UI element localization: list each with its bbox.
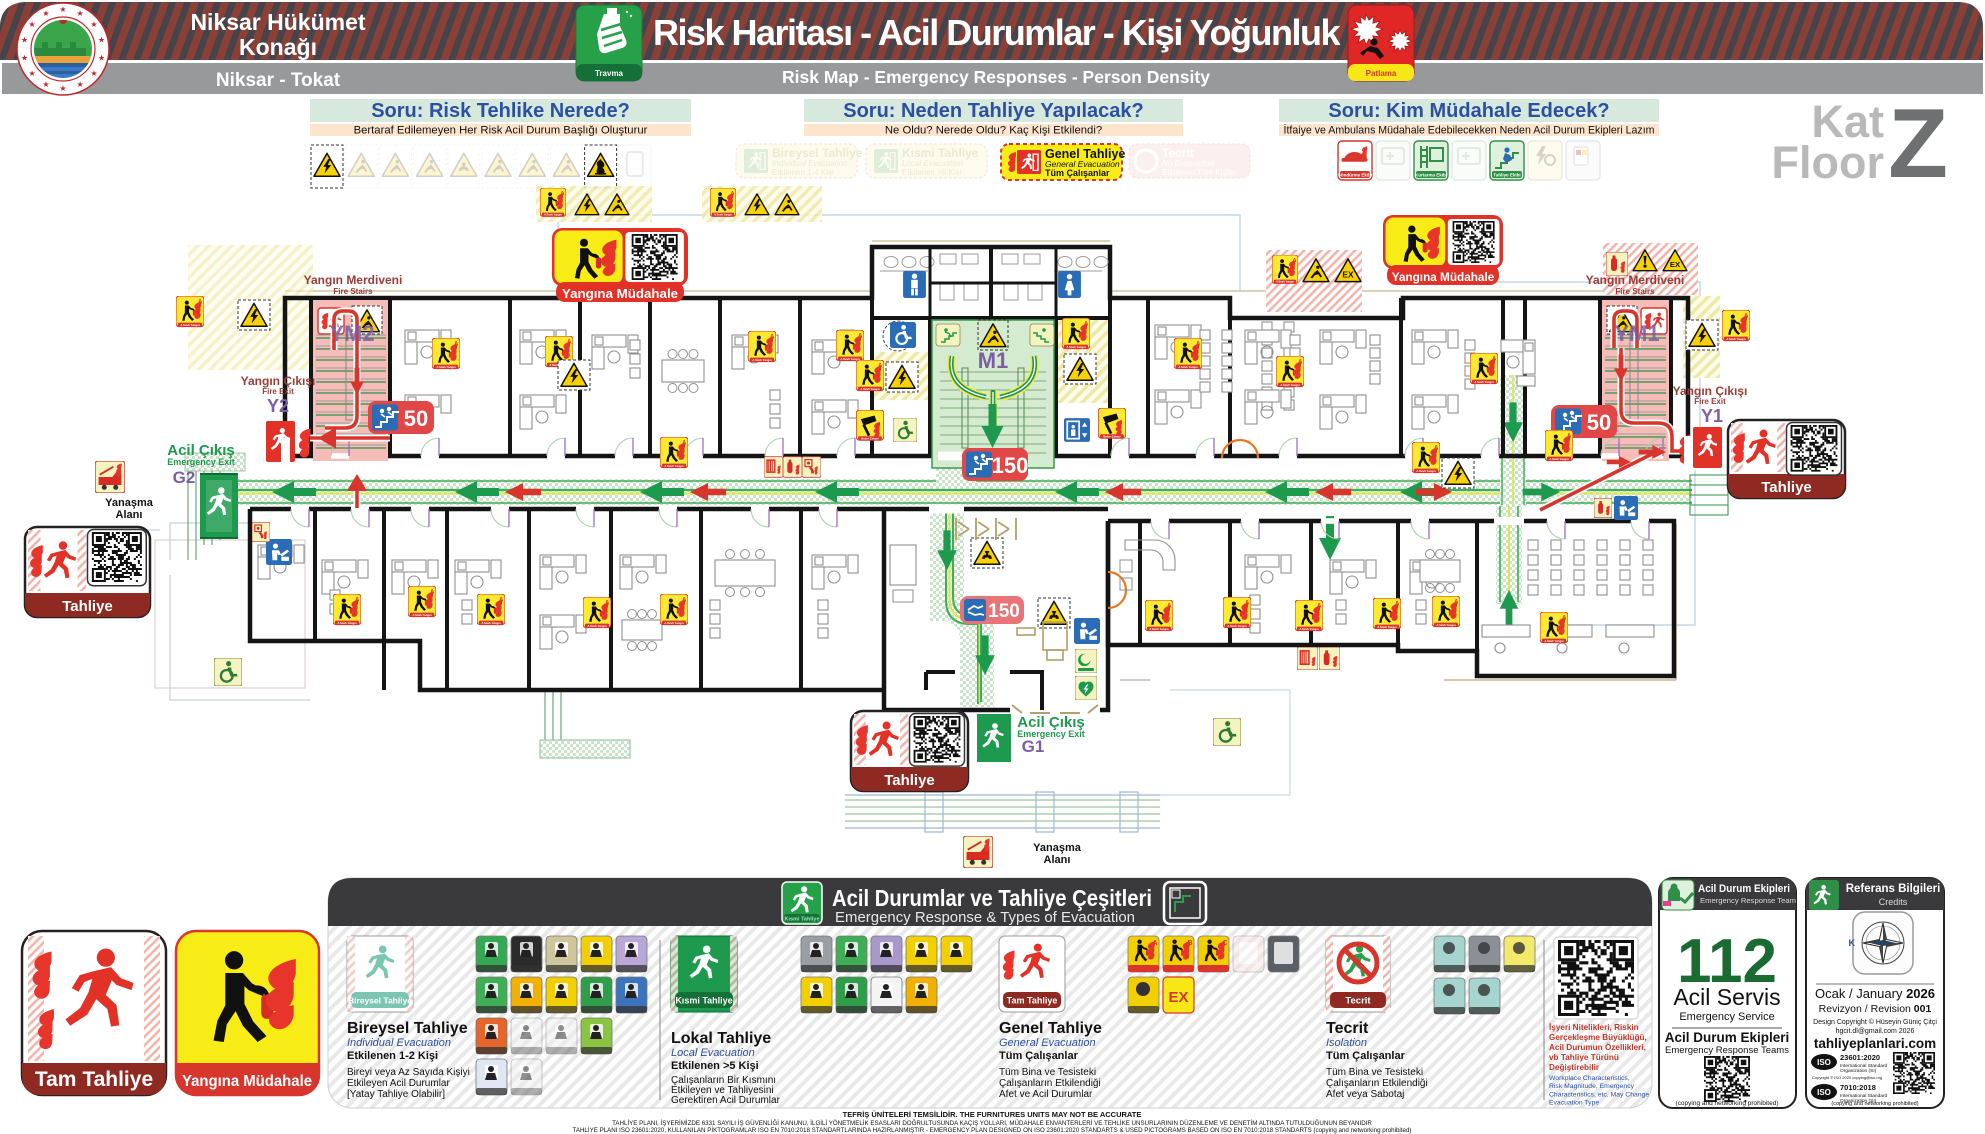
svg-text:Emergency Response & Types of: Emergency Response & Types of Evacuation <box>835 910 1135 926</box>
svg-text:hgcit.dl@gmail.com 2026: hgcit.dl@gmail.com 2026 <box>1836 1028 1915 1035</box>
svg-text:Tahliye: Tahliye <box>884 772 935 789</box>
svg-text:vb Tahliye Türünü: vb Tahliye Türünü <box>1549 1053 1619 1062</box>
svg-text:G1: G1 <box>1022 737 1045 756</box>
svg-text:★: ★ <box>77 80 84 89</box>
svg-text:Acil Durum Ekipleri: Acil Durum Ekipleri <box>1698 883 1790 895</box>
svg-text:Y1: Y1 <box>1701 406 1723 426</box>
svg-text:150: 150 <box>988 601 1020 622</box>
svg-text:★: ★ <box>29 20 36 29</box>
svg-text:Yangın Merdiveni: Yangın Merdiveni <box>304 273 403 287</box>
svg-text:Tecrit: Tecrit <box>1326 1020 1369 1037</box>
svg-text:Etkilenen 1-4 Kişi: Etkilenen 1-4 Kişi <box>772 168 834 177</box>
svg-text:Etkilenen Tüm Kişiler: Etkilenen Tüm Kişiler <box>1162 168 1237 177</box>
svg-text:Afet ve Acil Durumlar: Afet ve Acil Durumlar <box>999 1089 1093 1100</box>
svg-text:★: ★ <box>42 9 49 18</box>
svg-text:Tahliye Ekibi: Tahliye Ekibi <box>1493 173 1520 178</box>
svg-text:Kısmi Tahliye: Kısmi Tahliye <box>902 146 979 160</box>
svg-text:Tam Tahliye: Tam Tahliye <box>35 1068 153 1091</box>
svg-text:Yanaşma: Yanaşma <box>1033 842 1082 854</box>
svg-text:M1: M1 <box>978 348 1009 373</box>
svg-text:Copyright © ISO 2020 copying@i: Copyright © ISO 2020 copying@iso.org <box>1812 1075 1882 1080</box>
svg-text:İtfaiye ve Ambulans Müdahale E: İtfaiye ve Ambulans Müdahale Edebilecekk… <box>1284 124 1655 137</box>
svg-text:Local Evacuation: Local Evacuation <box>671 1047 755 1059</box>
svg-text:150: 150 <box>992 453 1029 478</box>
svg-text:Söndürme Ekibi: Söndürme Ekibi <box>1338 173 1372 178</box>
svg-text:Risk Haritası - Acil Durumlar: Risk Haritası - Acil Durumlar - Kişi Yoğ… <box>653 12 1341 53</box>
svg-text:Local Evacuation: Local Evacuation <box>902 159 963 168</box>
svg-text:Bireysel Tahliye: Bireysel Tahliye <box>347 1020 468 1037</box>
svg-text:Referans Bilgileri: Referans Bilgileri <box>1846 883 1941 895</box>
svg-text:50: 50 <box>404 406 428 431</box>
svg-text:Kurtarma Ekibi: Kurtarma Ekibi <box>1415 173 1447 178</box>
svg-text:Emergency Response Team: Emergency Response Team <box>1700 896 1796 905</box>
svg-text:Bireyi veya Az Sayıda Kişiyi: Bireyi veya Az Sayıda Kişiyi <box>347 1067 470 1078</box>
svg-text:7010:2018: 7010:2018 <box>1840 1083 1876 1092</box>
svg-text:Credits: Credits <box>1879 897 1908 907</box>
svg-text:İşyeri Nitelikleri, Riskin: İşyeri Nitelikleri, Riskin <box>1549 1022 1639 1032</box>
svg-text:23601:2020: 23601:2020 <box>1840 1053 1880 1062</box>
svg-text:YM2: YM2 <box>329 321 374 346</box>
svg-text:Tüm Bina ve Tesisteki: Tüm Bina ve Tesisteki <box>1326 1067 1423 1078</box>
svg-text:Soru: Neden Tahliye Yapılacak?: Soru: Neden Tahliye Yapılacak? <box>843 100 1143 122</box>
svg-text:Ne Oldu? Nerede Oldu? Kaç Kişi: Ne Oldu? Nerede Oldu? Kaç Kişi Etkilendi… <box>885 125 1102 137</box>
svg-text:★: ★ <box>98 36 105 45</box>
svg-text:Kısmi Tahliye: Kısmi Tahliye <box>675 996 732 1006</box>
svg-text:Individual Evacuation: Individual Evacuation <box>772 159 848 168</box>
svg-text:Acil Durum Ekipleri: Acil Durum Ekipleri <box>1665 1030 1790 1045</box>
svg-text:Tahliye: Tahliye <box>62 598 113 615</box>
svg-text:★: ★ <box>42 80 49 89</box>
svg-text:Gerektiren Acil Durumlar: Gerektiren Acil Durumlar <box>671 1095 781 1106</box>
svg-text:YM1: YM1 <box>1614 321 1659 346</box>
svg-text:TAHLİYE PLANI ISO 23601:2020,: TAHLİYE PLANI ISO 23601:2020, KULLANILAN… <box>573 1127 1412 1134</box>
svg-text:★: ★ <box>59 84 66 93</box>
svg-text:Acil Durumun Özellikleri,: Acil Durumun Özellikleri, <box>1549 1042 1646 1052</box>
svg-text:Yangına Müdahale: Yangına Müdahale <box>562 286 678 301</box>
svg-text:Revizyon / Revision 001: Revizyon / Revision 001 <box>1819 1003 1932 1015</box>
svg-text:Tahliye: Tahliye <box>1761 479 1812 496</box>
svg-text:General Evacuation: General Evacuation <box>999 1037 1096 1049</box>
svg-text:C: C <box>1222 940 1227 947</box>
svg-text:Bireysel Tahliye: Bireysel Tahliye <box>348 996 412 1006</box>
svg-text:Tüm Çalışanlar: Tüm Çalışanlar <box>1326 1050 1406 1062</box>
svg-text:Etkilenen 1-2 Kişi: Etkilenen 1-2 Kişi <box>347 1050 438 1062</box>
svg-text:Konağı: Konağı <box>239 34 317 60</box>
svg-text:K: K <box>1849 938 1856 948</box>
svg-text:Evacuation Type: Evacuation Type <box>1549 1100 1599 1107</box>
svg-text:Tecrit: Tecrit <box>1162 146 1194 160</box>
svg-text:Yangına Müdahale: Yangına Müdahale <box>182 1073 312 1090</box>
svg-text:Alanı: Alanı <box>116 509 143 521</box>
svg-text:Çalışanların Etkilendiği: Çalışanların Etkilendiği <box>1326 1078 1428 1089</box>
svg-text:Bertaraf Edilemeyen Her Risk A: Bertaraf Edilemeyen Her Risk Acil Durum … <box>354 125 648 137</box>
svg-text:ISO: ISO <box>1817 1058 1831 1067</box>
svg-text:Etkileyen Acil Durumlar: Etkileyen Acil Durumlar <box>347 1078 450 1089</box>
svg-text:Tüm Bina ve Tesisteki: Tüm Bina ve Tesisteki <box>999 1067 1096 1078</box>
svg-text:Etkilenen >5 Kişi: Etkilenen >5 Kişi <box>671 1060 759 1072</box>
svg-text:Yangın Çıkışı: Yangın Çıkışı <box>241 374 316 388</box>
svg-text:Isolation: Isolation <box>1326 1037 1367 1049</box>
svg-text:Risk Magnitude, Emergency: Risk Magnitude, Emergency <box>1549 1083 1635 1090</box>
svg-text:ISO: ISO <box>1817 1088 1831 1097</box>
svg-text:TEFRİŞ ÜNİTELERİ TEMSİLİDİR. T: TEFRİŞ ÜNİTELERİ TEMSİLİDİR. THE FURNITU… <box>843 1110 1142 1119</box>
svg-text:A: A <box>1152 940 1157 947</box>
svg-text:Emergency Exit: Emergency Exit <box>167 457 235 467</box>
svg-text:Individual Evacuation: Individual Evacuation <box>347 1037 451 1049</box>
svg-text:Design Copyright © Hüseyin Gün: Design Copyright © Hüseyin Güniç Çitçi <box>1813 1018 1937 1026</box>
svg-text:Soru: Kim Müdahale Edecek?: Soru: Kim Müdahale Edecek? <box>1328 100 1609 122</box>
svg-text:Afet veya Sabotaj: Afet veya Sabotaj <box>1326 1089 1404 1100</box>
svg-text:50: 50 <box>1587 410 1611 435</box>
svg-text:★: ★ <box>98 53 105 62</box>
svg-text:Soru: Risk Tehlike Nerede?: Soru: Risk Tehlike Nerede? <box>371 100 630 122</box>
svg-text:EX: EX <box>1168 989 1188 1006</box>
svg-text:★: ★ <box>90 69 97 78</box>
svg-text:(copying and networking prohib: (copying and networking prohibited) <box>1676 1100 1779 1107</box>
svg-text:Genel Tahliye: Genel Tahliye <box>999 1020 1102 1037</box>
svg-text:Ocak / January 2026: Ocak / January 2026 <box>1815 986 1935 1001</box>
svg-text:tahliyeplanlari.com: tahliyeplanlari.com <box>1814 1036 1936 1051</box>
svg-text:Yangın Merdiveni: Yangın Merdiveni <box>1586 273 1685 287</box>
svg-text:Yanaşma: Yanaşma <box>105 497 154 509</box>
svg-text:Characteristics, etc. May Chan: Characteristics, etc. May Change <box>1549 1091 1649 1098</box>
svg-text:Acil Servis: Acil Servis <box>1673 984 1780 1010</box>
svg-text:Floor: Floor <box>1772 137 1884 188</box>
svg-text:★: ★ <box>59 5 66 14</box>
svg-text:TAHLİYE PLANI, İŞYERİMİZDE 633: TAHLİYE PLANI, İŞYERİMİZDE 6331 SAYILI İ… <box>612 1120 1372 1127</box>
svg-text:Workplace Characteristics,: Workplace Characteristics, <box>1549 1075 1630 1082</box>
svg-text:★: ★ <box>21 53 28 62</box>
svg-text:★: ★ <box>29 69 36 78</box>
svg-text:Travma: Travma <box>595 69 624 78</box>
svg-text:G2: G2 <box>173 468 196 487</box>
svg-text:Fire Stairs: Fire Stairs <box>333 287 373 296</box>
svg-text:★: ★ <box>90 20 97 29</box>
svg-text:Emergency Service: Emergency Service <box>1679 1011 1774 1023</box>
svg-text:Risk Map - Emergency Responses: Risk Map - Emergency Responses - Person … <box>782 67 1210 87</box>
svg-text:Fire Stairs: Fire Stairs <box>1615 287 1655 296</box>
svg-text:Tüm Çalışanlar: Tüm Çalışanlar <box>999 1050 1079 1062</box>
svg-text:Alanı: Alanı <box>1044 854 1071 866</box>
svg-text:Gerçekleşme Büyüklüğü,: Gerçekleşme Büyüklüğü, <box>1549 1033 1647 1042</box>
svg-text:Acil Durumlar ve Tahliye Çeşit: Acil Durumlar ve Tahliye Çeşitleri <box>832 885 1152 911</box>
svg-text:Fire Exit: Fire Exit <box>262 387 294 396</box>
svg-text:Yangın Çıkışı: Yangın Çıkışı <box>1673 384 1748 398</box>
svg-text:B: B <box>1187 940 1192 947</box>
svg-text:Çalışanların Etkilendiği: Çalışanların Etkilendiği <box>999 1078 1101 1089</box>
svg-text:Etkilenen >5 Kişi: Etkilenen >5 Kişi <box>902 168 962 177</box>
svg-text:Lokal Tahliye: Lokal Tahliye <box>671 1030 771 1047</box>
svg-text:[Yatay Tahliye Olabilir]: [Yatay Tahliye Olabilir] <box>347 1089 445 1100</box>
svg-text:Fire Exit: Fire Exit <box>1694 397 1726 406</box>
svg-text:Yangına Müdahale: Yangına Müdahale <box>1392 271 1495 284</box>
svg-text:(copying and networking prohib: (copying and networking prohibited) <box>1831 1101 1918 1107</box>
svg-text:★: ★ <box>21 36 28 45</box>
svg-text:Bireysel Tahliye: Bireysel Tahliye <box>772 146 863 160</box>
svg-text:Niksar Hükümet: Niksar Hükümet <box>190 9 365 35</box>
svg-text:No Evacuation: No Evacuation <box>1162 159 1215 168</box>
svg-text:★: ★ <box>77 9 84 18</box>
svg-text:Organization (SI): Organization (SI) <box>1840 1068 1877 1074</box>
svg-text:Y2: Y2 <box>267 396 289 416</box>
svg-text:Patlama: Patlama <box>1366 69 1397 78</box>
svg-text:Tüm Çalışanlar: Tüm Çalışanlar <box>1045 168 1110 178</box>
svg-text:Tecrit: Tecrit <box>1345 996 1371 1007</box>
svg-text:Z: Z <box>1888 88 1948 198</box>
svg-text:Kısmi Tahliye: Kısmi Tahliye <box>784 917 819 923</box>
svg-text:Niksar - Tokat: Niksar - Tokat <box>216 70 341 91</box>
svg-text:Tam Tahliye: Tam Tahliye <box>1007 996 1058 1006</box>
svg-text:Emergency Response Teams: Emergency Response Teams <box>1665 1045 1789 1056</box>
svg-text:Değiştirebilir: Değiştirebilir <box>1549 1063 1600 1072</box>
